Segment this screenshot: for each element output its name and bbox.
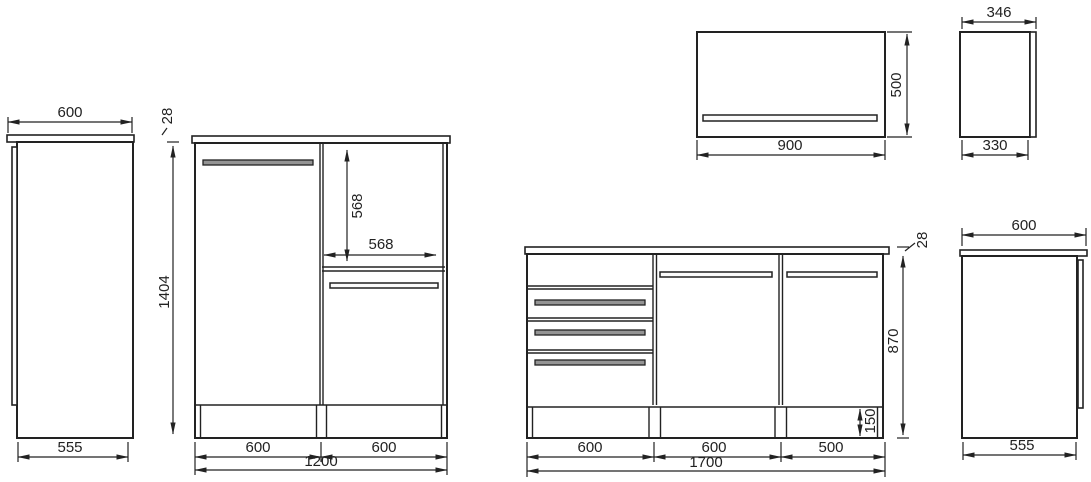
dimension-label: 346 [986,4,1011,21]
countertop [7,135,134,142]
dimension-label: 600 [1011,217,1036,234]
dimension-label: 600 [577,439,602,456]
countertop [192,136,450,143]
wall-cabinet-side-view: 346 330 [960,4,1036,160]
dimension-label: 600 [371,439,396,456]
dimension-label: 600 [245,439,270,456]
dimension-label: 500 [888,72,905,97]
dimension-label: 555 [57,439,82,456]
countertop [525,247,889,254]
dimension-label: 330 [982,137,1007,154]
drawer-handle [535,300,645,305]
dimension-label: 1404 [156,275,173,308]
door-handle [330,283,438,288]
door-handle [203,160,313,165]
dimension-label: 1700 [689,454,722,471]
dimension-label: 150 [862,408,879,433]
technical-drawing-canvas: 600 555 568 568 28 1404 [0,0,1091,482]
dimension-label: 900 [777,137,802,154]
dimension-label: 28 [159,108,176,125]
kitchen-dimension-drawing: 600 555 568 568 28 1404 [0,0,1091,482]
drawer-handle [535,330,645,335]
door-front-edge [1030,32,1036,137]
cabinet-body [960,32,1030,137]
cabinet-body [17,142,133,438]
base-cabinet-side-view: 600 555 [960,217,1087,460]
dimension-label: 28 [914,232,931,249]
wall-cabinet-900-front-view: 500 900 [697,32,912,160]
door-handle [660,272,772,277]
door-front-edge [1078,260,1083,408]
dimension-label: 500 [818,439,843,456]
cabinet-body [527,254,883,438]
dimension-label: 555 [1009,437,1034,454]
drawer-handle [535,360,645,365]
dimension-label: 600 [57,104,82,121]
door-handle [787,272,877,277]
dimension-label: 1200 [304,453,337,470]
cabinet-body [195,143,447,438]
door-handle [703,115,877,121]
tall-cabinet-side-view: 600 555 [7,104,134,462]
leader-line [162,128,167,135]
dimension-label: 568 [368,236,393,253]
cabinet-body [962,256,1077,438]
dimension-label: 568 [349,193,366,218]
base-cabinet-1200-front-view: 568 568 28 1404 600 600 1200 [156,108,450,475]
dimension-label: 870 [885,328,902,353]
base-cabinet-1700-front-view: 150 28 870 600 600 500 1700 [525,232,931,477]
door-front-edge [12,147,17,405]
